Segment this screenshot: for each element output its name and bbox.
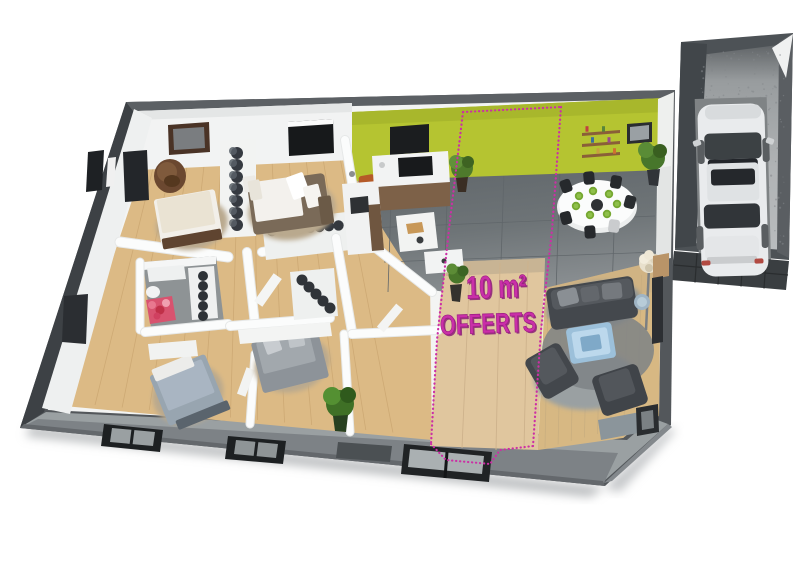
svg-text:10 m²: 10 m² bbox=[466, 268, 527, 306]
svg-text:OFFERTS: OFFERTS bbox=[440, 307, 538, 341]
